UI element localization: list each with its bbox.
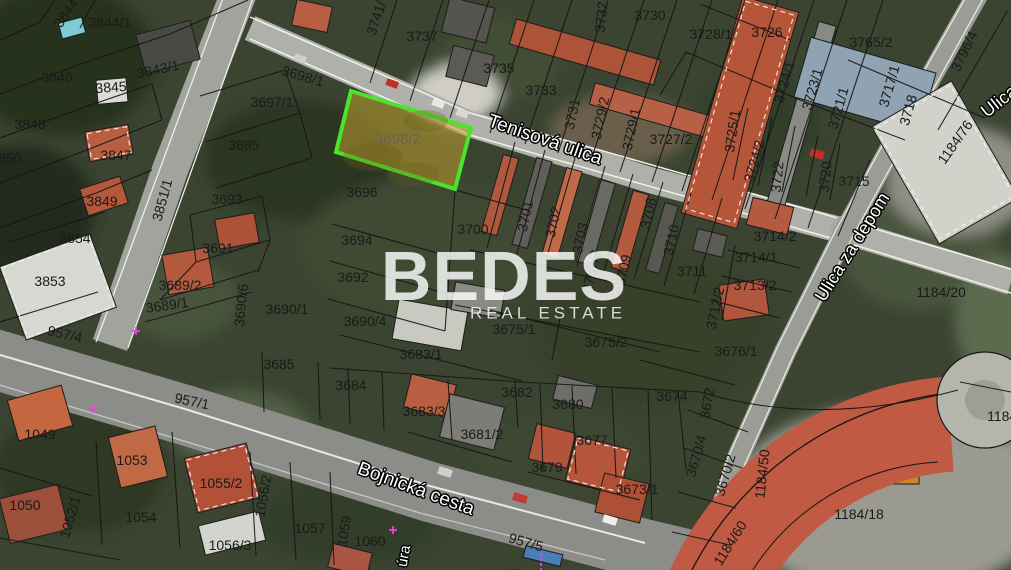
parcel-label: 3690/4 [344, 314, 387, 328]
parcel-label: 1052/1 [57, 494, 82, 539]
parcel-label: 3673/1 [616, 482, 659, 496]
parcel-label: 3672 [697, 386, 716, 419]
parcel-label: 3702 [543, 205, 563, 238]
parcel-label: 3845 [95, 79, 127, 95]
parcel-label: 957/1 [173, 391, 210, 412]
parcel-label: 3733 [525, 83, 556, 97]
parcel-label: 3846 [41, 70, 72, 84]
parcel-label: 1055/2 [200, 476, 243, 490]
parcel-label: 1060 [354, 534, 385, 548]
parcel-label: 957/5 [507, 530, 545, 553]
parcel-label: 3690/6 [232, 283, 250, 327]
parcel-label: 3714/1 [735, 250, 778, 264]
parcel-label: 3725/1 [722, 109, 742, 153]
parcel-label: 3851/1 [150, 178, 175, 223]
parcel-label: 3690/1 [266, 302, 309, 316]
parcel-label: 3729/2 [589, 96, 612, 141]
parcel-label: 1057 [294, 521, 325, 535]
parcel-label: 3676/1 [715, 344, 758, 358]
parcel-label: 3682 [501, 385, 532, 399]
map-canvas[interactable]: 38443844/13843/1384638453848385038473695… [0, 0, 1011, 570]
street-label: Ulica za depom [811, 190, 892, 305]
parcel-label: 1049 [24, 427, 55, 441]
parcel-label: 3724/2 [741, 138, 766, 183]
parcel-label: 3715 [838, 174, 869, 188]
parcel-label: 3853 [34, 274, 65, 288]
parcel-label: 3679 [531, 460, 562, 474]
parcel-label: 957/4 [46, 323, 83, 345]
parcel-label: 3683/3 [403, 404, 446, 418]
parcel-label: 3730 [634, 8, 665, 22]
parcel-label: 1184/50 [752, 449, 771, 500]
street-label: úra [395, 544, 414, 568]
parcel-label: 3670/4 [683, 433, 708, 478]
parcel-label: 1054 [125, 510, 156, 524]
parcel-label: 3696 [346, 185, 377, 199]
parcel-label: 3735 [483, 61, 514, 75]
parcel-label: 3737 [406, 29, 437, 43]
parcel-label: 3844 [51, 0, 80, 30]
parcel-label: 3674 [656, 389, 687, 403]
parcel-label: 3720 [816, 161, 833, 193]
parcel-label: 3765/2 [850, 35, 893, 49]
parcel-label: 3700 [457, 222, 488, 236]
parcel-label: 3693 [211, 192, 242, 206]
parcel-label: 3847 [100, 148, 131, 162]
parcel-label: 3677 [576, 433, 607, 447]
parcel-label: 3683/1 [400, 347, 443, 361]
parcel-label: 3741/ [364, 0, 388, 37]
parcel-label: 3675/2 [585, 335, 628, 349]
parcel-label: 3724/1 [771, 59, 796, 104]
parcel-label: 3675/1 [493, 322, 536, 336]
parcel-label: 3684 [335, 378, 366, 392]
parcel-label: 3729/1 [620, 107, 643, 152]
parcel-label: 3723/1 [799, 66, 824, 111]
parcel-label: 1059 [334, 514, 353, 547]
parcel-label: 3692 [337, 270, 368, 284]
parcel-label: 3721/1 [825, 85, 850, 130]
parcel-label: 3711 [677, 264, 707, 278]
parcel-label: 1184/76 [935, 118, 975, 167]
parcel-label: 3844/1 [89, 15, 132, 29]
parcel-label: 1184/18 [834, 507, 884, 521]
parcel-label: 3850 [0, 151, 22, 165]
parcel-label: 3848 [14, 117, 45, 131]
parcel-label: 1056/3 [209, 538, 252, 552]
highlighted-parcel-label: 3698/2 [375, 132, 421, 147]
parcel-label: 3732 [592, 1, 609, 33]
parcel-label: 3685 [263, 357, 294, 371]
parcel-label: 3722 [768, 161, 785, 193]
parcel-label: 1184/20 [916, 285, 966, 299]
parcel-label: 3694 [341, 233, 372, 247]
parcel-label: 3713/2 [734, 278, 777, 292]
parcel-label: 3717/1 [876, 63, 901, 108]
parcel-label: 3796/4 [948, 29, 979, 74]
parcel-label: 1053 [116, 453, 147, 467]
parcel-label: 1184/2 [987, 409, 1011, 423]
parcel-label: 1050 [9, 498, 40, 512]
parcel-label: 3680 [552, 397, 583, 411]
parcel-label: 3731 [562, 97, 582, 130]
parcel-label: 3854 [59, 231, 90, 245]
parcel-label: 3670/2 [712, 452, 737, 497]
parcel-label: 3714/2 [754, 229, 797, 243]
parcel-label: 3701 [515, 199, 535, 232]
street-label: Bojnická cesta [355, 459, 477, 519]
parcel-label: 3689/1 [145, 295, 189, 315]
parcel-label: 1056/2 [252, 474, 273, 519]
parcel-label: 3718 [897, 93, 919, 127]
street-label: Tenisová ulica [485, 112, 604, 169]
parcel-label: 3843/1 [136, 58, 181, 81]
parcel-label: 1184/60 [711, 518, 749, 567]
parcel-label: 3698/1 [280, 63, 325, 88]
parcel-label: 3691 [202, 241, 233, 255]
parcel-label: 3708 [638, 196, 658, 229]
parcel-label: 3697/1 [251, 95, 294, 109]
parcel-label: 3689/2 [159, 278, 202, 292]
parcel-label: 3726 [751, 25, 782, 39]
parcel-label: 3712/2 [704, 286, 727, 331]
parcel-label: 3728/1 [690, 27, 733, 41]
watermark-subtitle: REAL ESTATE [470, 305, 626, 322]
parcel-label: 3849 [86, 194, 117, 208]
watermark-title: BEDES [381, 241, 627, 311]
parcel-label: 3681/2 [461, 427, 504, 441]
parcel-label: 3727/2 [650, 132, 693, 146]
street-label: Ulica [978, 82, 1011, 121]
parcel-label: 3695 [228, 138, 259, 152]
parcel-label: 3710 [661, 223, 681, 256]
